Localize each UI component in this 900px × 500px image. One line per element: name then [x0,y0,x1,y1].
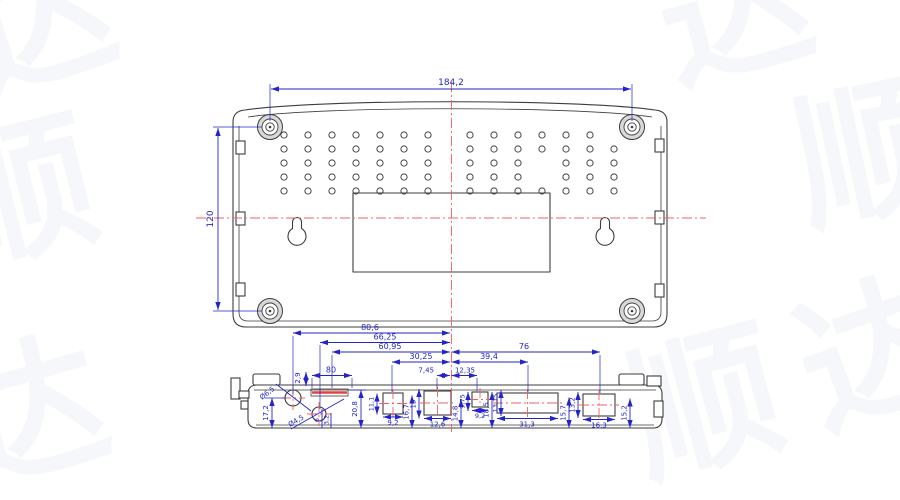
screw-boss-bottom-right [620,299,645,324]
technical-drawing: 184,2 120 80,6 66,25 60,95 [0,0,900,500]
vent-hole [425,132,431,138]
vent-hole [401,146,407,152]
vent-hole [611,188,617,194]
dim-16-3: 16,3 [591,422,607,430]
dim-39-4: 39,4 [480,352,498,361]
vent-hole [377,174,383,180]
vent-hole [305,160,311,166]
vent-hole [401,160,407,166]
vent-hole-grid [281,132,617,194]
vent-hole [329,132,335,138]
vent-hole [611,174,617,180]
vent-hole [515,160,521,166]
vent-hole [425,160,431,166]
dim-76: 76 [519,342,529,351]
dim-11-1: 11,1 [368,397,376,411]
dim-3-2: 3,2 [323,415,331,425]
vent-hole [281,160,287,166]
edge-tab [655,211,664,224]
top-mount-tab-right [619,374,644,385]
dim-12-35: 12,35 [455,367,475,375]
vent-hole [467,132,473,138]
vent-hole [491,146,497,152]
vent-hole [329,146,335,152]
dim-15: 15 [410,400,418,409]
vent-hole [491,174,497,180]
enclosure-inner-wall [239,126,661,321]
enclosure-outline [233,102,667,327]
left-bracket-clip [231,378,249,409]
top-view [233,102,667,327]
vent-hole [563,132,569,138]
vent-hole [281,132,287,138]
vent-hole [563,146,569,152]
dim-60-95: 60,95 [379,342,402,351]
dim-9-2-b: 9,2 [475,412,485,420]
vent-hole [353,146,359,152]
vent-hole [377,132,383,138]
vent-hole [587,174,593,180]
vent-hole [281,174,287,180]
vent-hole [377,146,383,152]
dim-9-2-a: 9,2 [387,419,398,427]
top-mount-tab-left [253,374,280,385]
keyhole-slot-left [288,218,306,246]
dim-80: 80 [326,366,336,375]
vent-hole [329,174,335,180]
vent-hole [587,160,593,166]
dim-17-2: 17,2 [262,405,270,421]
vent-hole [353,160,359,166]
edge-tab [236,212,245,225]
vent-hole [539,132,545,138]
vent-hole [491,160,497,166]
edge-tab [236,283,245,296]
dim-31-3: 31,3 [519,421,535,429]
vent-hole [611,160,617,166]
dim-13-15: 13,15 [492,394,500,413]
vent-hole [305,146,311,152]
edge-tab [655,139,664,152]
vent-hole [305,132,311,138]
vent-hole [401,132,407,138]
vent-hole [425,146,431,152]
dim-13-2: 13,2 [569,397,577,413]
dim-66-25: 66,25 [374,333,397,342]
dim-12-6: 12,6 [430,421,446,429]
vent-hole [467,160,473,166]
dim-6: 6 [313,418,321,422]
vent-hole [377,160,383,166]
dim-80-6: 80,6 [361,323,379,332]
vent-hole [587,132,593,138]
dim-20-8: 20,8 [351,401,359,417]
vent-hole [305,188,311,194]
vent-hole [353,132,359,138]
vent-hole [515,174,521,180]
dim-7-45: 7,45 [418,367,434,375]
vent-hole [281,146,287,152]
dim-2-9: 2,9 [294,372,302,383]
vent-hole [515,132,521,138]
dim-15-7: 15,7 [560,405,568,421]
vent-hole [587,188,593,194]
vent-hole [563,174,569,180]
vent-hole [539,146,545,152]
vent-hole [305,174,311,180]
vent-hole [329,188,335,194]
dim-30-25: 30,25 [410,352,433,361]
vent-hole [587,146,593,152]
edge-tab [655,284,664,297]
vent-hole [611,146,617,152]
vent-hole [515,146,521,152]
vent-hole [467,146,473,152]
dim-width-label: 184,2 [438,78,464,88]
vent-hole [281,188,287,194]
vent-hole [329,160,335,166]
vent-hole [563,160,569,166]
dim-height-label: 120 [206,210,216,227]
drawing-canvas: 达 顺 达 达 顺 顺 达 [0,0,900,500]
vent-hole [563,188,569,194]
vent-hole [491,132,497,138]
vent-hole [425,174,431,180]
dim-9-75: 9,75 [459,394,467,408]
vent-hole [401,174,407,180]
vent-hole [467,174,473,180]
edge-tab [236,141,245,154]
dim-15-2: 15,2 [621,405,629,421]
keyhole-slot-right [596,218,614,246]
enclosure-arch-inner-line [248,109,652,117]
vent-hole [353,174,359,180]
